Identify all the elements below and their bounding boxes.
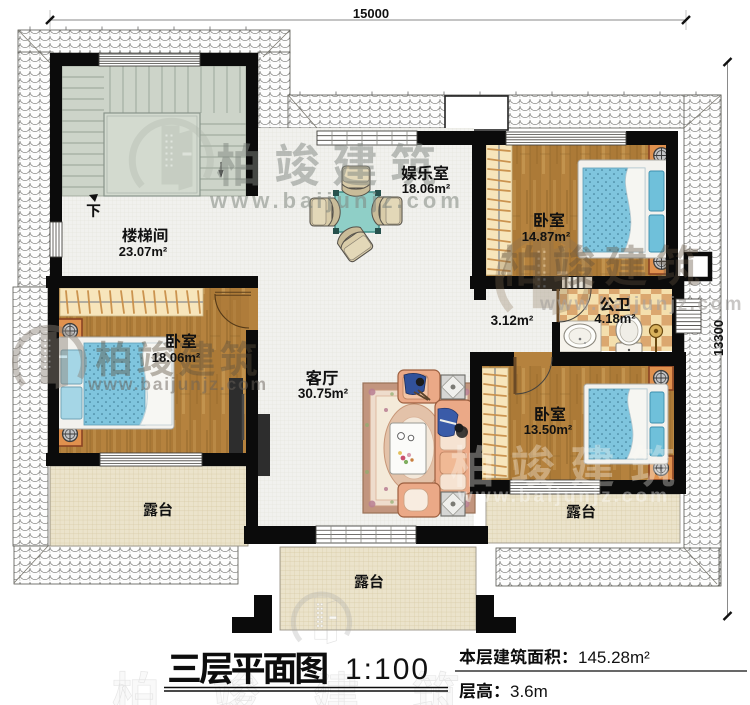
svg-text:15000: 15000 <box>353 6 389 21</box>
svg-text:13.50m²: 13.50m² <box>524 422 573 437</box>
svg-text:1:100: 1:100 <box>345 653 430 686</box>
svg-text:3.6m: 3.6m <box>510 682 548 701</box>
svg-text:www.baijunjz.com: www.baijunjz.com <box>457 486 670 507</box>
svg-text:3.12m²: 3.12m² <box>491 313 534 328</box>
svg-text:18.06m²: 18.06m² <box>152 350 201 365</box>
svg-text:4.18m²: 4.18m² <box>594 311 636 326</box>
svg-text:145.28m²: 145.28m² <box>578 648 650 667</box>
svg-text:23.07m²: 23.07m² <box>119 244 168 259</box>
svg-text:www.baijunjz.com: www.baijunjz.com <box>87 374 268 394</box>
svg-text:18.06m²: 18.06m² <box>402 181 451 196</box>
svg-text:14.87m²: 14.87m² <box>522 229 571 244</box>
svg-text:13300: 13300 <box>711 320 726 356</box>
svg-text:30.75m²: 30.75m² <box>298 386 349 401</box>
svg-text:www.baijunjz.com: www.baijunjz.com <box>539 294 744 315</box>
